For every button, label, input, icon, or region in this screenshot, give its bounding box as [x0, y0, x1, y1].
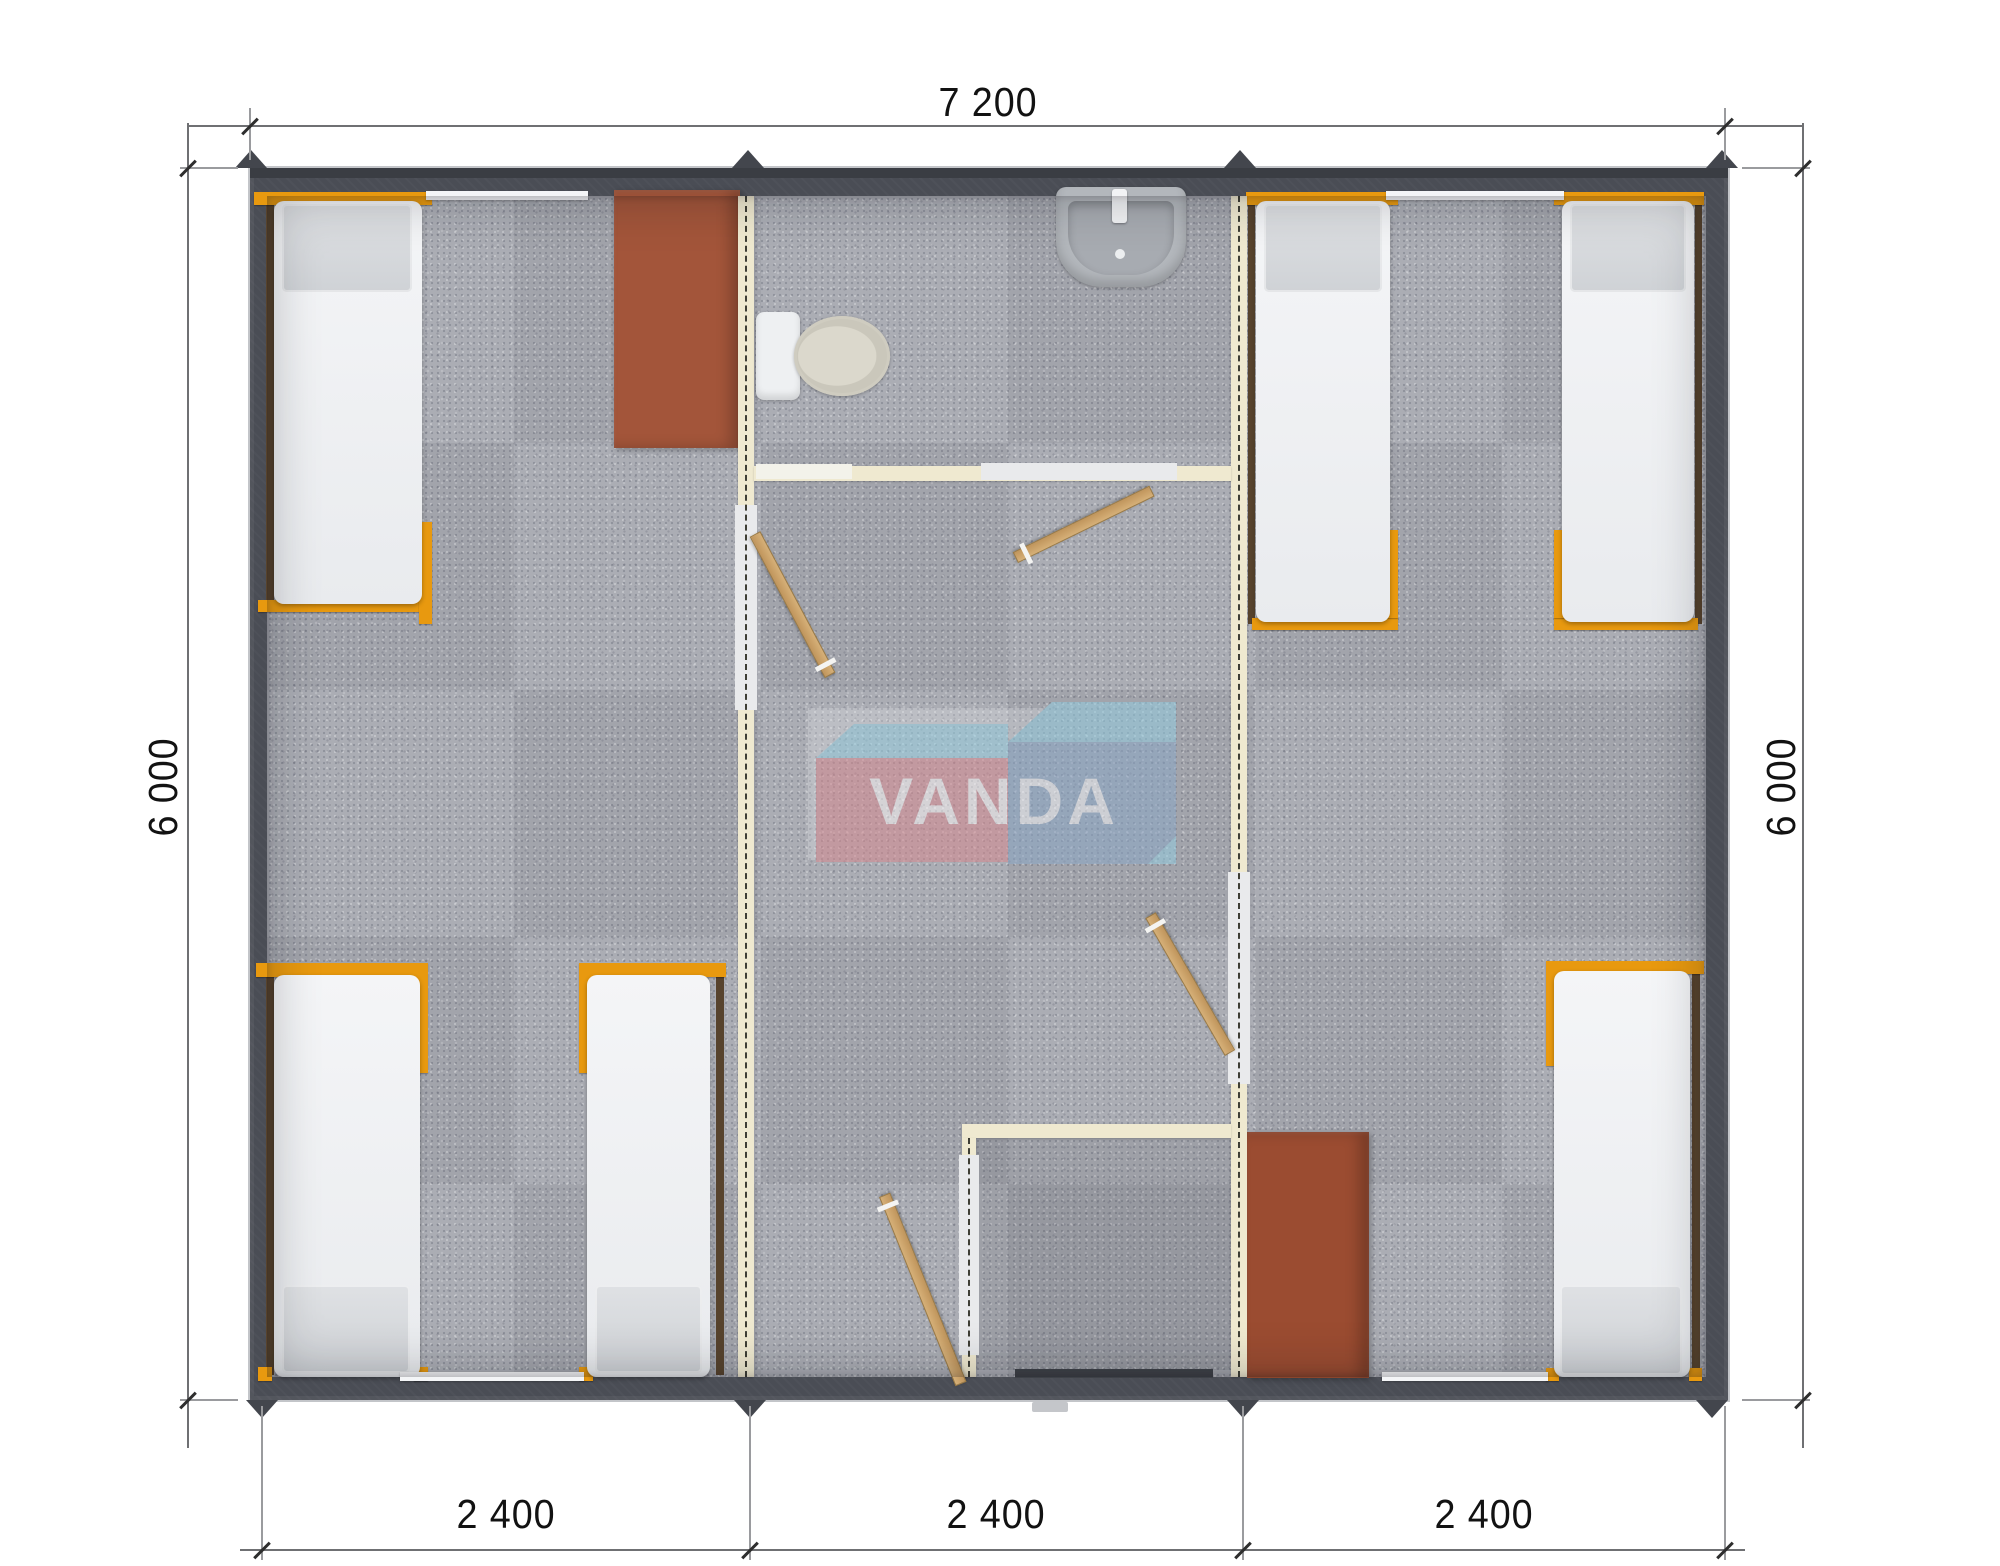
- extension-line: [749, 1406, 751, 1560]
- wardrobe: [614, 190, 740, 448]
- vanda-logo-icon: VANDA: [802, 694, 1182, 879]
- wardrobe: [1247, 1132, 1369, 1378]
- extension-line: [261, 1406, 263, 1560]
- bed: [1246, 192, 1394, 630]
- bed-wall-strip: [1692, 969, 1700, 1375]
- pillow: [1264, 204, 1382, 292]
- bed: [581, 963, 726, 1383]
- bed-frame-foot: [258, 1367, 272, 1381]
- bed: [256, 192, 428, 612]
- window: [426, 191, 588, 200]
- bed-wall-strip: [266, 971, 274, 1375]
- bed: [1548, 961, 1704, 1383]
- bed-wall-strip: [1248, 198, 1255, 624]
- dimension-label-bottom-3: 2 400: [1383, 1492, 1585, 1536]
- vestibule-wall-left: [962, 1138, 976, 1377]
- vestibule-wall-top: [962, 1124, 1231, 1138]
- bed-wall-strip: [1695, 198, 1702, 624]
- dimension-label-right: 6 000: [1759, 686, 1803, 888]
- pillow: [282, 204, 412, 292]
- watermark-text: VANDA: [869, 764, 1119, 838]
- module-joint-marker: [235, 150, 267, 168]
- sink-faucet-icon: [1112, 189, 1127, 223]
- pillow: [1560, 1285, 1682, 1375]
- pillow: [595, 1285, 702, 1373]
- dimension-line-top: [188, 125, 1803, 127]
- module-joint-marker: [1706, 150, 1738, 168]
- exterior-wall-top-edge: [250, 168, 1728, 178]
- dimension-label-bottom-2: 2 400: [895, 1492, 1097, 1536]
- entry-door-threshold: [1015, 1369, 1213, 1378]
- pillow: [282, 1285, 410, 1373]
- partition-centerline: [968, 1138, 970, 1377]
- module-joint-marker: [732, 150, 764, 168]
- partition-wall-right: [1231, 196, 1247, 1377]
- dimension-line-bottom: [240, 1549, 1745, 1551]
- extension-line: [1724, 1406, 1726, 1560]
- extension-line: [1242, 1406, 1244, 1560]
- floor-plan: VANDA 7 200 2 400 2 400 2 400 6 000 6 00…: [0, 0, 2000, 1566]
- dimension-label-top: 7 200: [887, 80, 1089, 124]
- door-opening: [981, 463, 1177, 480]
- bed-frame-foot: [1689, 1368, 1702, 1381]
- module-joint-marker: [1224, 150, 1256, 168]
- dimension-label-left: 6 000: [141, 686, 185, 888]
- extension-line: [1724, 108, 1726, 160]
- partition-centerline: [745, 196, 747, 1377]
- extension-line: [249, 108, 251, 160]
- pillow: [1570, 204, 1686, 292]
- bed-wall-strip: [266, 198, 274, 604]
- bathroom-wall: [754, 466, 1231, 481]
- partition-wall-left: [738, 196, 754, 1377]
- window: [1386, 191, 1564, 200]
- vestibule-floor-shade: [976, 1138, 1231, 1370]
- vanda-watermark: VANDA: [802, 694, 1182, 879]
- bed: [256, 963, 426, 1383]
- wall-highlight: [756, 464, 852, 479]
- partition-centerline: [1238, 196, 1240, 1377]
- bed: [1558, 192, 1704, 630]
- entry-step: [1032, 1402, 1068, 1412]
- sink-drain: [1115, 249, 1125, 259]
- bed-wall-strip: [716, 971, 724, 1375]
- toilet-bowl: [794, 316, 890, 396]
- dimension-label-bottom-1: 2 400: [405, 1492, 607, 1536]
- dimension-line-left: [187, 123, 189, 1448]
- window: [400, 1372, 584, 1381]
- window: [1382, 1372, 1548, 1381]
